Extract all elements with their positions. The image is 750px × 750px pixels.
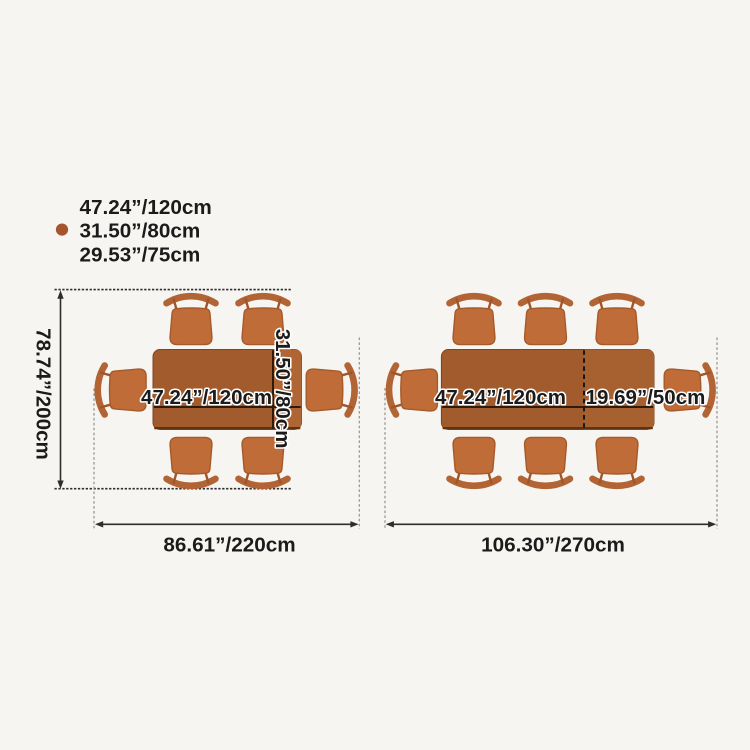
svg-text:86.61”/220cm: 86.61”/220cm — [163, 533, 295, 556]
svg-text:47.24”/120cm: 47.24”/120cm — [435, 386, 566, 409]
svg-text:31.50”/80cm: 31.50”/80cm — [271, 329, 294, 449]
svg-text:78.74”/200cm: 78.74”/200cm — [32, 328, 55, 460]
svg-text:29.53”/75cm: 29.53”/75cm — [80, 243, 201, 266]
svg-text:106.30”/270cm: 106.30”/270cm — [481, 533, 625, 556]
svg-text:47.24”/120cm: 47.24”/120cm — [141, 386, 272, 409]
svg-text:47.24”/120cm: 47.24”/120cm — [80, 196, 212, 219]
svg-text:31.50”/80cm: 31.50”/80cm — [80, 219, 201, 242]
svg-text:19.69”/50cm: 19.69”/50cm — [586, 386, 706, 409]
